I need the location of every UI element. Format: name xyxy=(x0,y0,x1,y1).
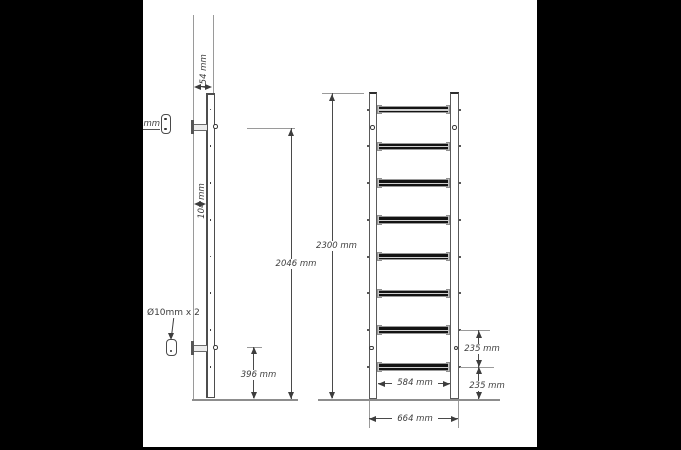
dim-664-arrow-right xyxy=(451,416,458,422)
dim-2300-arrow-up xyxy=(329,94,335,101)
dim-2046-arrow-down xyxy=(288,392,294,399)
rung-bar xyxy=(379,216,448,224)
dim-396-label: 396 mm xyxy=(235,370,282,380)
dim-396-arrow-down xyxy=(251,392,257,399)
front-hole-top-right xyxy=(452,125,457,130)
stile-bolt-dot xyxy=(459,292,461,294)
side-stile xyxy=(206,93,215,398)
dim-396-arrow-up xyxy=(251,347,257,354)
rung-highlight xyxy=(379,146,448,147)
front-extension-line xyxy=(213,15,214,93)
rung-bar xyxy=(379,106,448,114)
redaction-bar-right xyxy=(537,0,681,450)
rung-highlight xyxy=(379,367,448,368)
rung-bar xyxy=(379,290,448,298)
dim-235b-arrow-down xyxy=(476,392,482,399)
rung-bar xyxy=(379,143,448,151)
stile-bolt-dot xyxy=(367,219,369,221)
rung-highlight xyxy=(379,183,448,184)
front-stile-left xyxy=(369,92,377,400)
dim-2300-label: 2300 mm xyxy=(313,241,360,251)
stile-bolt-dot xyxy=(367,109,369,111)
stile-bolt-dot xyxy=(367,182,369,184)
bottom-bracket-bolt xyxy=(213,345,218,350)
dim-2046-label: 2046 mm xyxy=(273,259,319,269)
stile-bolt-dot xyxy=(367,329,369,331)
anchor-spec-label: Ø10mm x 2 xyxy=(146,308,198,318)
redaction-strip-bottom xyxy=(0,447,681,450)
top-bracket-arm xyxy=(193,124,207,131)
front-floor-line xyxy=(318,399,500,401)
stile-bolt-dot xyxy=(367,256,369,258)
dim-584-arrow-left xyxy=(378,381,385,387)
rung-bar xyxy=(379,253,448,261)
dim-104-label: 104 mm xyxy=(197,181,207,221)
dim-664-arrow-left xyxy=(369,416,376,422)
dim-235a-arrow-down xyxy=(476,360,482,367)
rung-bar xyxy=(379,363,448,371)
rung xyxy=(377,105,450,115)
dim-584-arrow-right xyxy=(443,381,450,387)
dim-2046-arrow-up xyxy=(288,129,294,136)
dim-2300-arrow-down xyxy=(329,392,335,399)
front-hole-bottom-left xyxy=(369,346,374,351)
rung-bar xyxy=(379,179,448,187)
dim-235b-arrow-up xyxy=(476,367,482,374)
ext-664-left xyxy=(369,401,370,428)
rung-highlight xyxy=(379,330,448,331)
stile-bolt-dot xyxy=(367,366,369,368)
anchor-icon xyxy=(166,339,177,356)
rung-highlight xyxy=(379,293,448,294)
rung-highlight xyxy=(379,220,448,221)
dim-235b-label: 235 mm xyxy=(466,381,508,391)
rung xyxy=(377,362,450,372)
rung-bar xyxy=(379,326,448,334)
stile-bolt-dot xyxy=(459,219,461,221)
rung-highlight xyxy=(379,109,448,110)
ext-664-right xyxy=(458,401,459,428)
dim-235a-label: 235 mm xyxy=(461,344,503,354)
bottom-bracket-arm xyxy=(193,345,207,352)
rung-highlight xyxy=(379,257,448,258)
dim-154-label: 154 mm xyxy=(199,52,209,92)
stile-bolt-dot xyxy=(459,256,461,258)
front-hole-top-left xyxy=(370,125,375,130)
top-bracket-plate xyxy=(191,120,194,135)
bottom-bracket-plate xyxy=(191,341,194,356)
dim-664-label: 664 mm xyxy=(392,414,438,424)
side-floor-line xyxy=(192,399,298,401)
rung xyxy=(377,178,450,188)
top-bracket-bolt xyxy=(213,124,218,129)
stile-bolt-dot xyxy=(459,182,461,184)
dim-584-label: 584 mm xyxy=(392,378,438,388)
rung xyxy=(377,325,450,335)
front-stile-right xyxy=(450,92,459,400)
stile-bolt-dot xyxy=(459,109,461,111)
ext-235-upper xyxy=(460,330,490,331)
rung xyxy=(377,142,450,152)
screw-icon-pin-top xyxy=(164,118,166,120)
rung xyxy=(377,289,450,299)
rung xyxy=(377,252,450,262)
technical-drawing-canvas: 154 mm 104 mm 75 mm 2046 mm 396 mm Ø10mm… xyxy=(0,0,681,450)
redaction-bar-left xyxy=(0,0,143,450)
dim-235a-arrow-up xyxy=(476,331,482,338)
stile-bolt-dot xyxy=(459,145,461,147)
rung xyxy=(377,215,450,225)
